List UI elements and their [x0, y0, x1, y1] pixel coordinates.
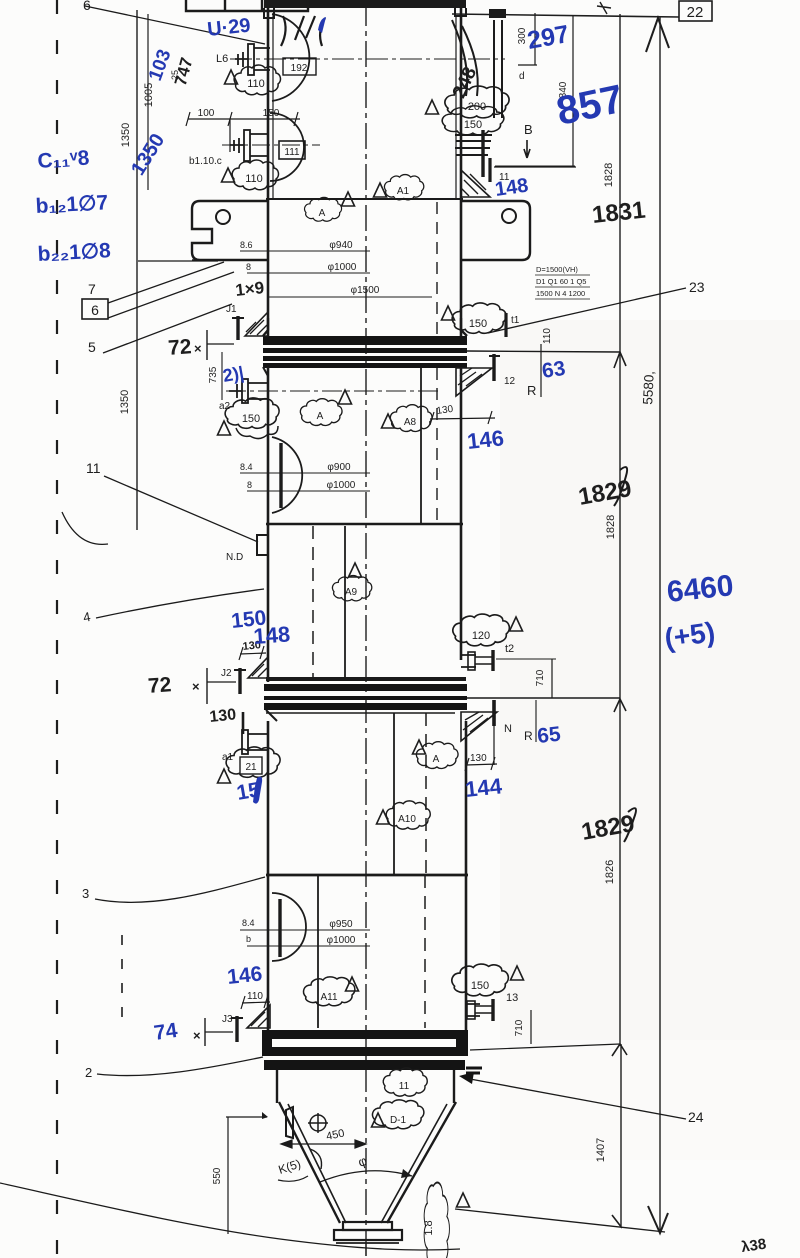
- svg-text:D-1: D-1: [390, 1115, 407, 1126]
- svg-text:192: 192: [291, 63, 308, 74]
- svg-text:74: 74: [152, 1019, 179, 1045]
- svg-text:13: 13: [506, 992, 518, 1004]
- svg-text:B: B: [524, 122, 533, 137]
- svg-text:23: 23: [689, 279, 705, 295]
- svg-text:25: 25: [170, 70, 180, 80]
- svg-text:150: 150: [469, 318, 487, 330]
- svg-text:φ1500: φ1500: [351, 285, 380, 296]
- svg-text:11: 11: [399, 1081, 410, 1092]
- svg-text:5580,: 5580,: [640, 370, 657, 405]
- svg-text:A8: A8: [404, 417, 417, 428]
- svg-text:550: 550: [212, 1167, 223, 1184]
- svg-text:λ38: λ38: [740, 1236, 767, 1256]
- svg-text:8.6: 8.6: [240, 240, 253, 250]
- svg-text:φ900: φ900: [327, 462, 351, 473]
- svg-text:A11: A11: [320, 992, 337, 1003]
- svg-text:65: 65: [536, 723, 562, 748]
- svg-text:130: 130: [209, 706, 237, 726]
- svg-text:U·29: U·29: [206, 15, 251, 41]
- svg-text:110: 110: [542, 328, 553, 344]
- svg-text:710: 710: [514, 1019, 525, 1036]
- svg-text:A10: A10: [398, 814, 416, 825]
- svg-text:735: 735: [208, 366, 219, 383]
- svg-text:24: 24: [688, 1109, 704, 1125]
- svg-text:φ950: φ950: [329, 919, 353, 930]
- svg-text:t2: t2: [505, 643, 514, 655]
- svg-text:1828: 1828: [605, 515, 617, 539]
- svg-text:72: 72: [167, 335, 192, 360]
- svg-text:12: 12: [504, 376, 516, 387]
- svg-text:110: 110: [247, 78, 265, 90]
- svg-text:6: 6: [91, 302, 99, 318]
- svg-text:148: 148: [494, 175, 530, 201]
- svg-text:6460: 6460: [665, 569, 735, 609]
- svg-text:b₂₂1∅8: b₂₂1∅8: [37, 239, 112, 266]
- svg-text:×: ×: [194, 341, 202, 356]
- svg-text:150: 150: [464, 119, 482, 131]
- svg-text:N: N: [504, 723, 512, 735]
- svg-text:b1.10.c: b1.10.c: [189, 156, 222, 167]
- svg-text:150: 150: [263, 108, 280, 119]
- svg-text:710: 710: [535, 669, 546, 686]
- svg-text:1.8: 1.8: [423, 1220, 435, 1235]
- svg-text:120: 120: [472, 630, 490, 642]
- svg-text:6: 6: [83, 0, 91, 13]
- svg-text:b: b: [246, 934, 251, 944]
- svg-text:A9: A9: [345, 587, 358, 598]
- svg-text:22: 22: [687, 4, 704, 21]
- svg-text:×: ×: [192, 679, 200, 694]
- svg-text:d: d: [519, 71, 525, 82]
- svg-text:A: A: [319, 208, 326, 219]
- svg-text:φ940: φ940: [329, 240, 353, 251]
- svg-text:11: 11: [86, 460, 101, 476]
- svg-text:111: 111: [284, 147, 300, 158]
- svg-text:1350: 1350: [119, 390, 131, 414]
- svg-text:21: 21: [245, 762, 257, 773]
- svg-text:φ1000: φ1000: [327, 480, 356, 491]
- svg-text:1500 N 4 1200: 1500 N 4 1200: [536, 289, 585, 298]
- svg-text:130: 130: [470, 753, 487, 764]
- svg-text:146: 146: [226, 962, 263, 989]
- svg-text:D1 Q1 60 1 Q5: D1 Q1 60 1 Q5: [536, 277, 586, 286]
- svg-text:100: 100: [198, 108, 215, 119]
- svg-text:1831: 1831: [591, 197, 647, 229]
- svg-text:N.D: N.D: [226, 552, 243, 563]
- svg-text:C₁₁ᵛ8: C₁₁ᵛ8: [37, 146, 91, 173]
- svg-text:150: 150: [242, 413, 260, 425]
- svg-text:146: 146: [466, 425, 505, 454]
- svg-text:5: 5: [88, 339, 96, 355]
- svg-text:8: 8: [247, 480, 252, 490]
- svg-text:R: R: [527, 383, 536, 398]
- svg-text:b₁₂1∅7: b₁₂1∅7: [35, 191, 109, 218]
- svg-text:t1: t1: [511, 315, 520, 326]
- svg-text:110: 110: [245, 173, 263, 185]
- svg-text:63: 63: [540, 357, 566, 383]
- svg-text:1350: 1350: [120, 123, 132, 147]
- svg-text:3: 3: [82, 886, 89, 901]
- svg-text:φ1000: φ1000: [327, 935, 356, 946]
- svg-text:A: A: [317, 411, 324, 422]
- svg-text:×: ×: [193, 1028, 201, 1043]
- svg-text:L6: L6: [216, 53, 228, 65]
- svg-text:7: 7: [88, 281, 96, 297]
- svg-text:J3: J3: [222, 1014, 233, 1025]
- svg-text:8.4: 8.4: [240, 462, 253, 472]
- svg-text:φ1000: φ1000: [328, 262, 357, 273]
- svg-text:R: R: [524, 729, 533, 743]
- svg-text:8.4: 8.4: [242, 918, 255, 928]
- svg-text:148: 148: [253, 621, 291, 649]
- svg-text:A: A: [433, 754, 440, 765]
- svg-text:200: 200: [468, 101, 486, 113]
- svg-text:110: 110: [247, 991, 263, 1002]
- svg-text:8: 8: [246, 262, 251, 272]
- svg-text:1407: 1407: [595, 1138, 607, 1162]
- svg-text:J2: J2: [221, 668, 232, 679]
- svg-text:2)|: 2)|: [221, 363, 245, 386]
- svg-text:1826: 1826: [604, 860, 616, 884]
- svg-text:144: 144: [464, 773, 504, 802]
- svg-text:72: 72: [147, 673, 172, 698]
- svg-text:D=1500(VH): D=1500(VH): [536, 265, 578, 274]
- svg-text:2: 2: [85, 1065, 92, 1080]
- svg-text:150: 150: [471, 980, 489, 992]
- svg-text:1005: 1005: [143, 83, 155, 107]
- svg-text:1×9: 1×9: [234, 278, 265, 300]
- svg-text:1828: 1828: [603, 163, 615, 187]
- svg-text:A1: A1: [397, 186, 410, 197]
